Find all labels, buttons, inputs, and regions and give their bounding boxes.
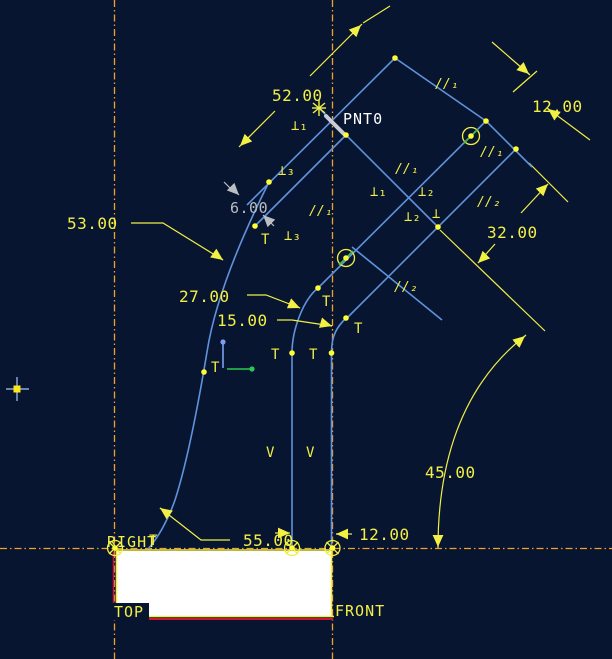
witness-line-12-top — [513, 71, 537, 92]
arrow-27 — [293, 305, 300, 308]
dimension-15[interactable]: 15.00 — [217, 311, 268, 330]
dimarc-45[interactable] — [438, 335, 526, 548]
sketch-axes — [220, 339, 254, 371]
constraint-perp-c[interactable]: ⊥ — [432, 206, 440, 222]
point-label[interactable]: PNT0 — [343, 110, 383, 128]
arrow-32-b — [478, 256, 485, 263]
constraint-tangent-5[interactable]: T — [309, 347, 318, 363]
constraint-perp1-a[interactable]: ⊥₁ — [291, 118, 308, 134]
dimension-27[interactable]: 27.00 — [179, 287, 230, 306]
arrow-53 — [216, 255, 223, 260]
constraint-tangent-3[interactable]: T — [354, 321, 363, 337]
constraint-tangent-7[interactable]: T — [149, 533, 158, 549]
dimension-12-top[interactable]: 12.00 — [532, 97, 583, 116]
constraint-tangent-1[interactable]: T — [261, 232, 270, 248]
leader-53[interactable] — [131, 223, 223, 260]
arrow-12top-a — [520, 66, 529, 74]
dimension-32[interactable]: 32.00 — [487, 223, 538, 242]
sketch-line-6[interactable] — [486, 121, 532, 167]
constraint-tangent-4[interactable]: T — [271, 347, 280, 363]
datum-crosshair[interactable] — [6, 377, 29, 401]
arrow-6-a — [233, 189, 239, 195]
constraint-par2-b[interactable]: //₂ — [394, 280, 417, 295]
witness-line-32-upper — [529, 163, 568, 202]
leader-27[interactable] — [247, 295, 300, 308]
sketcher-canvas[interactable]: 52.00 12.00 32.00 53.00 27.00 15.00 45.0… — [0, 0, 612, 659]
axis-y-tip — [220, 339, 225, 344]
constraint-vertical-1[interactable]: V — [266, 445, 275, 461]
constraint-perp3-a[interactable]: ⊥₃ — [278, 163, 295, 179]
sketch-arc-left[interactable] — [148, 182, 269, 549]
highlighted-surface[interactable] — [117, 551, 331, 616]
constraint-perp1-b[interactable]: ⊥₁ — [370, 184, 387, 200]
arrow-45-top — [518, 336, 525, 342]
constraint-vertical-2[interactable]: V — [306, 445, 315, 461]
dimension-45[interactable]: 45.00 — [425, 463, 476, 482]
dimline-6-a[interactable] — [224, 182, 232, 190]
dimension-6-weak[interactable]: 6.00 — [230, 199, 268, 217]
dimension-55[interactable]: 55.00 — [243, 531, 294, 550]
arrow-52-high — [351, 25, 361, 35]
constraint-par1-d[interactable]: //₁ — [480, 145, 503, 160]
constraint-tangent-6[interactable]: T — [211, 360, 220, 376]
dimension-12-bottom[interactable]: 12.00 — [359, 525, 410, 544]
constraint-perp3-b[interactable]: ⊥₃ — [284, 228, 301, 244]
sketch-arc-right[interactable] — [332, 318, 347, 353]
arrow-32-a — [541, 184, 548, 191]
constraint-par1-b[interactable]: //₁ — [395, 162, 418, 177]
constraint-perp2-b[interactable]: ⊥₂ — [404, 209, 421, 225]
leader-15[interactable] — [277, 320, 332, 326]
arrow-55-left — [160, 508, 167, 513]
dimension-53[interactable]: 53.00 — [67, 214, 118, 233]
constraint-perp2-a[interactable]: ⊥₂ — [418, 184, 435, 200]
axis-x-tip — [249, 366, 254, 371]
datum-label-front[interactable]: FRONT — [335, 602, 385, 620]
constraint-par1-a[interactable]: //₁ — [309, 204, 332, 219]
datum-label-top[interactable]: TOP — [114, 603, 144, 621]
sketch-drawing: 52.00 12.00 32.00 53.00 27.00 15.00 45.0… — [0, 0, 612, 659]
constraint-tangent-2[interactable]: T — [322, 294, 331, 310]
constraint-par1-c[interactable]: //₁ — [435, 77, 458, 92]
witness-line-52 — [363, 6, 390, 23]
dimension-52[interactable]: 52.00 — [272, 86, 323, 105]
arrow-52-low — [240, 136, 250, 146]
constraint-par2-a[interactable]: //₂ — [477, 195, 500, 210]
witness-line-45 — [440, 230, 545, 331]
